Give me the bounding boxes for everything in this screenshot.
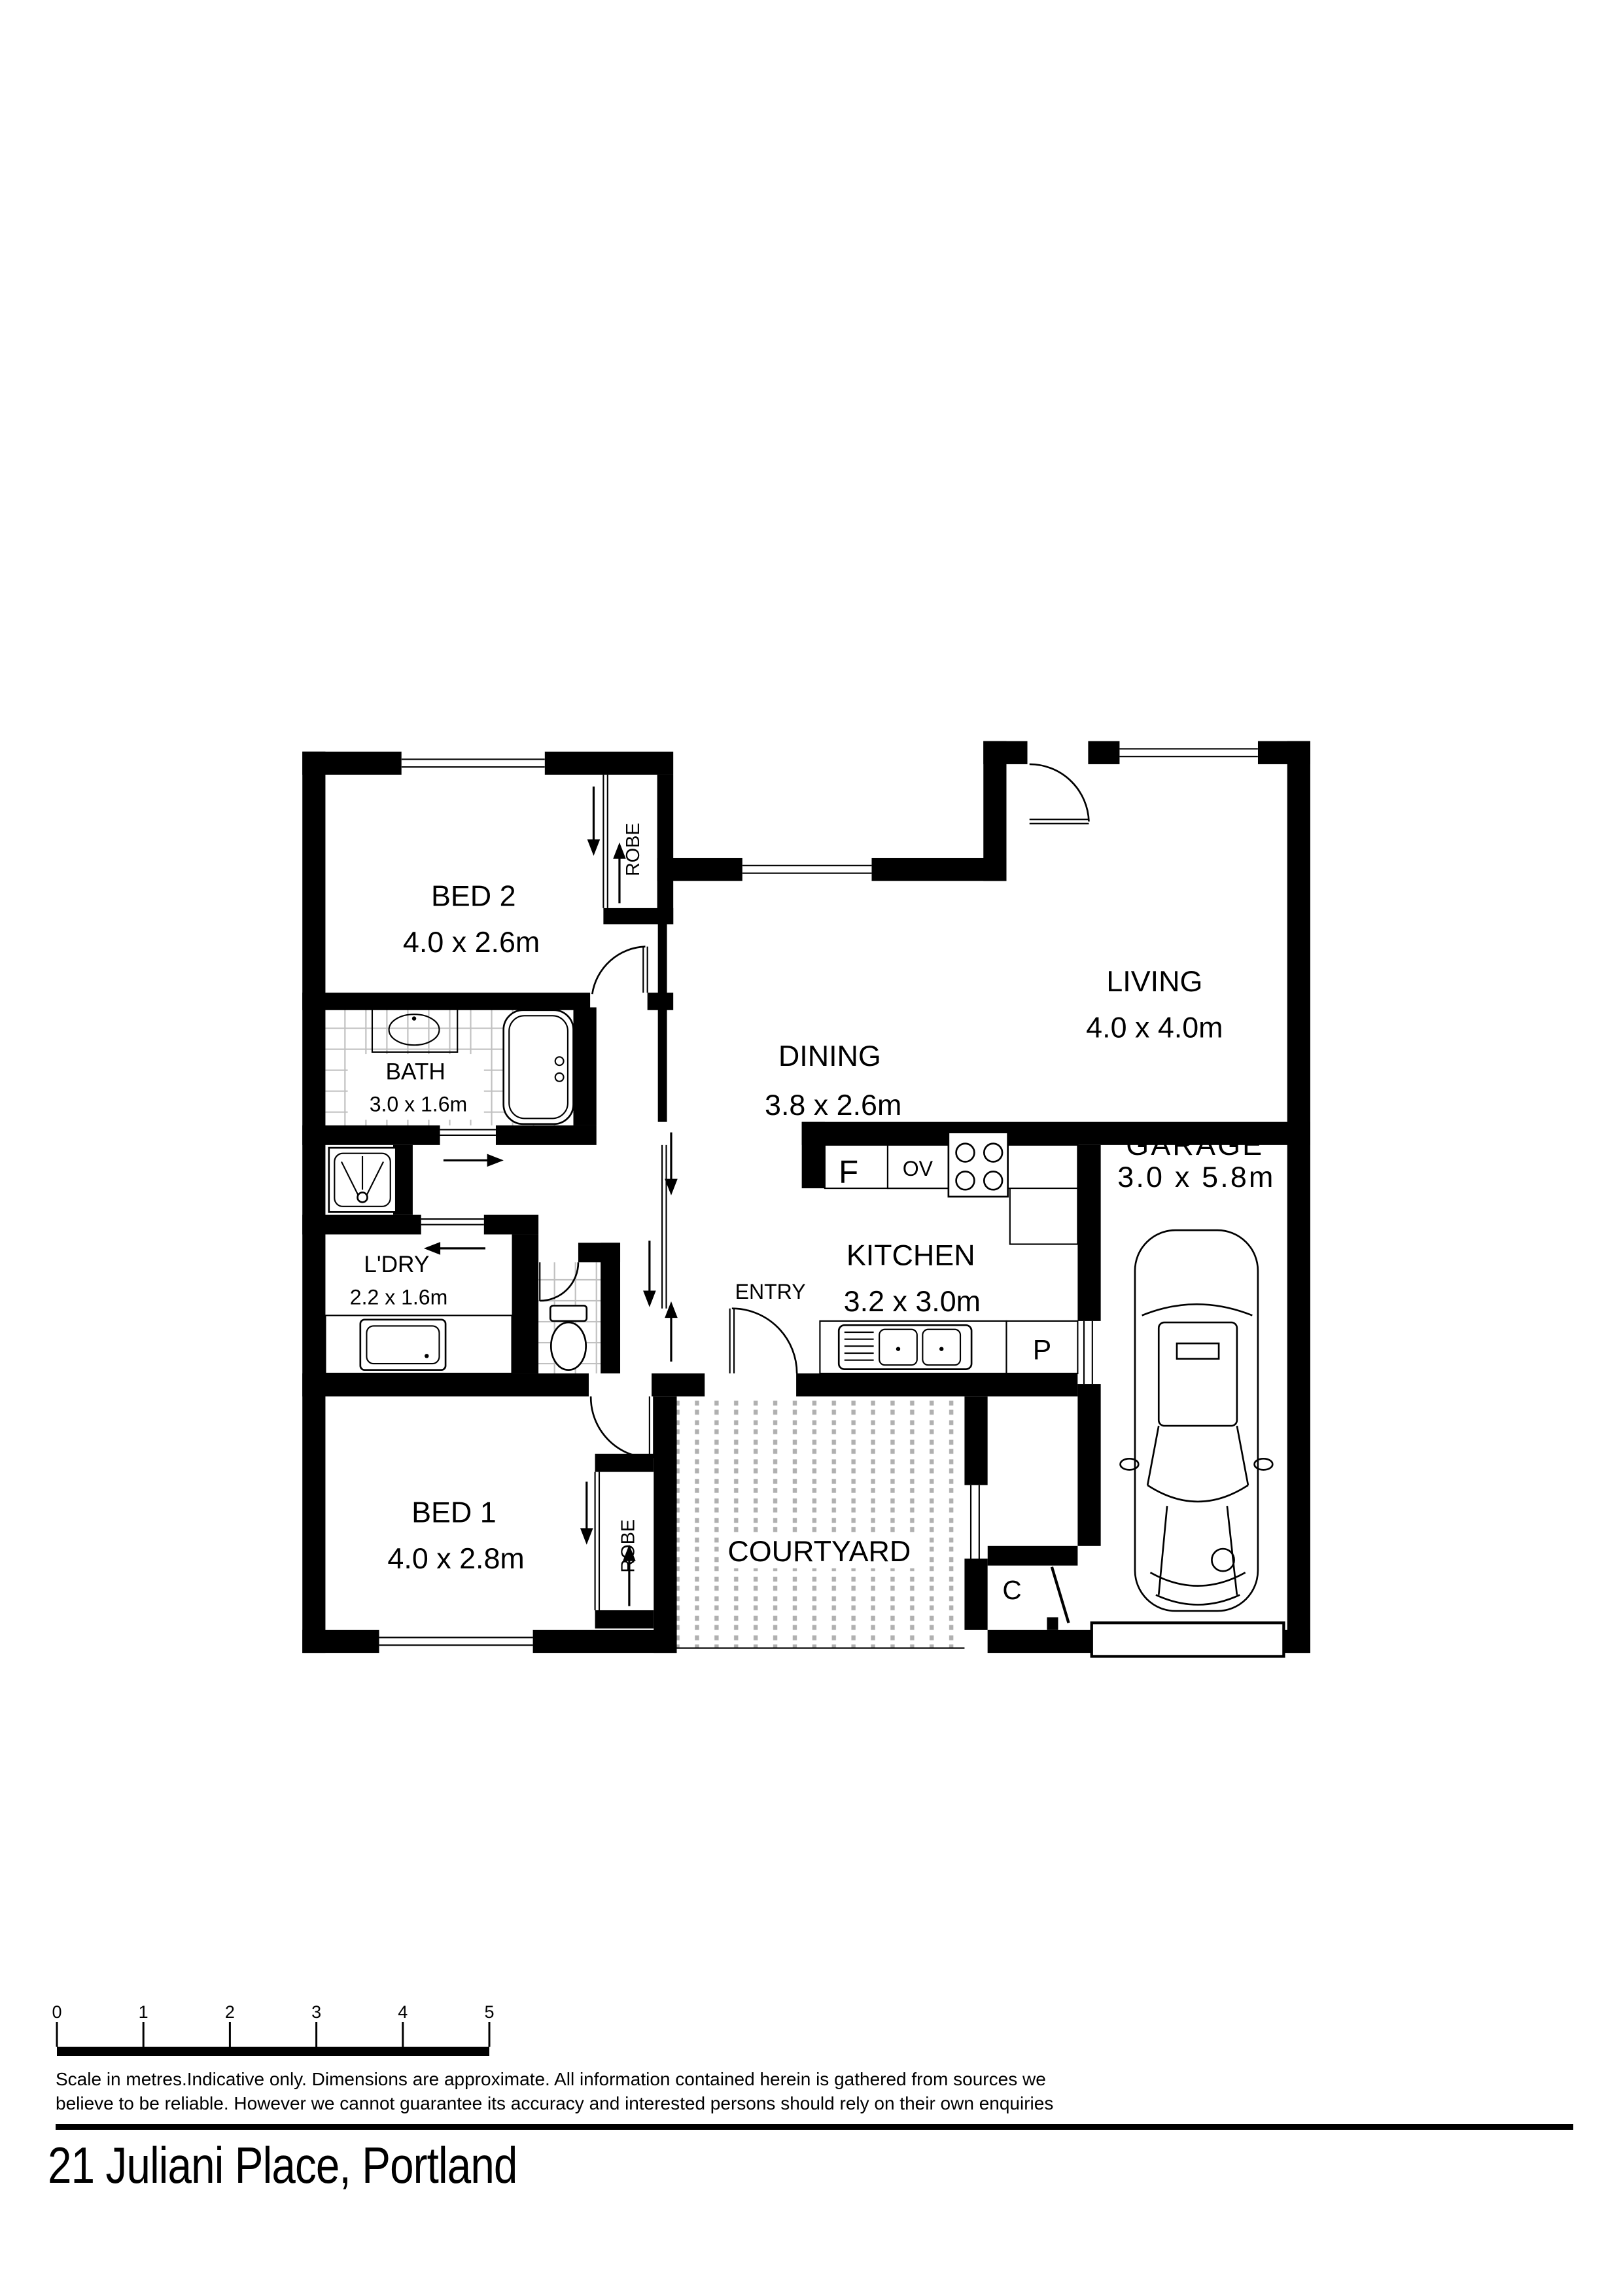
window-garage-side xyxy=(1077,1321,1100,1384)
robe1-sliding-track xyxy=(595,1472,599,1610)
room-courtyard: COURTYARD xyxy=(727,1534,911,1568)
kitchen-label: KITCHEN xyxy=(846,1239,975,1272)
room-ldry: L'DRY 2.2 x 1.6m xyxy=(350,1252,447,1309)
kitchen-bench-return xyxy=(1010,1188,1078,1244)
bath-dims: 3.0 x 1.6m xyxy=(370,1093,467,1116)
shower-icon xyxy=(329,1148,396,1212)
ldry-sliding-door xyxy=(421,1219,484,1225)
bed2-door xyxy=(592,947,647,995)
oven-label: OV xyxy=(903,1157,934,1180)
cupboard-label: C xyxy=(1002,1575,1021,1605)
tick-2: 2 xyxy=(225,2002,235,2022)
bed1-label: BED 1 xyxy=(411,1495,497,1528)
car-icon xyxy=(1121,1230,1273,1611)
scale-bar-ticks xyxy=(57,2022,489,2047)
hall-sliding-track xyxy=(662,1145,666,1309)
disclaimer-line-1: Scale in metres.Indicative only. Dimensi… xyxy=(56,2068,1200,2091)
cupboard-door xyxy=(1047,1567,1068,1630)
kitchen-sink-icon xyxy=(839,1325,971,1369)
footer-divider xyxy=(56,2124,1573,2130)
scale-bar-line xyxy=(57,2047,489,2056)
courtyard-paving xyxy=(677,1396,965,1648)
living-dims: 4.0 x 4.0m xyxy=(1086,1010,1223,1044)
tick-1: 1 xyxy=(139,2002,148,2022)
bed2-dims: 4.0 x 2.6m xyxy=(403,925,540,959)
property-address: 21 Juliani Place, Portland xyxy=(48,2136,517,2195)
ldry-label: L'DRY xyxy=(364,1252,429,1277)
bed2-label: BED 2 xyxy=(431,879,516,913)
room-living: LIVING 4.0 x 4.0m xyxy=(1086,964,1223,1044)
living-label: LIVING xyxy=(1106,964,1202,998)
room-garage: GARAGE 3.0 x 5.8m xyxy=(1117,1128,1275,1193)
room-dining: DINING 3.8 x 2.6m xyxy=(765,1039,901,1122)
window-living xyxy=(1119,741,1257,764)
scale-bar: 0 1 2 3 4 5 xyxy=(39,1989,576,2061)
window-bed1 xyxy=(379,1630,533,1653)
bed1-dims: 4.0 x 2.8m xyxy=(387,1542,524,1575)
tick-0: 0 xyxy=(52,2002,61,2022)
cooktop-icon xyxy=(949,1133,1008,1197)
garage-dims: 3.0 x 5.8m xyxy=(1117,1160,1275,1193)
dining-dims: 3.8 x 2.6m xyxy=(765,1088,901,1122)
room-bed1: BED 1 4.0 x 2.8m xyxy=(387,1495,524,1574)
fridge-label: F xyxy=(839,1155,858,1190)
robe2-label: ROBE xyxy=(623,822,644,876)
kitchen-dims: 3.2 x 3.0m xyxy=(844,1284,981,1318)
entry-door xyxy=(730,1309,797,1373)
bath-sliding-door xyxy=(440,1129,496,1135)
room-kitchen: KITCHEN 3.2 x 3.0m xyxy=(844,1239,981,1318)
robe2-sliding-track xyxy=(603,775,607,908)
toilet-icon xyxy=(550,1305,587,1369)
disclaimer-line-2: believe to be reliable. However we canno… xyxy=(56,2092,1200,2115)
ldry-dims: 2.2 x 1.6m xyxy=(350,1285,447,1309)
page: BED 2 4.0 x 2.6m DINING 3.8 x 2.6m LIVIN… xyxy=(0,0,1623,2296)
window-courtyard-side xyxy=(964,1485,987,1559)
entry-label: ENTRY xyxy=(735,1280,806,1303)
tick-5: 5 xyxy=(484,2002,494,2022)
room-bed2: BED 2 4.0 x 2.6m xyxy=(403,879,540,959)
bed1-door xyxy=(591,1396,654,1458)
tick-4: 4 xyxy=(398,2002,408,2022)
garage-door xyxy=(1092,1623,1284,1656)
bathtub-icon xyxy=(504,1010,574,1124)
laundry-tub-icon xyxy=(325,1315,512,1373)
pantry-label: P xyxy=(1033,1335,1051,1366)
front-door xyxy=(1030,764,1089,824)
bath-label: BATH xyxy=(386,1059,445,1084)
dining-label: DINING xyxy=(778,1039,881,1072)
robe1-label: ROBE xyxy=(618,1519,638,1573)
window-dining xyxy=(742,858,872,881)
garage-label: GARAGE xyxy=(1126,1128,1264,1161)
floor-plan: BED 2 4.0 x 2.6m DINING 3.8 x 2.6m LIVIN… xyxy=(281,713,1361,1662)
courtyard-label: COURTYARD xyxy=(727,1534,911,1568)
tick-3: 3 xyxy=(311,2002,321,2022)
window-bed2 xyxy=(402,752,545,775)
